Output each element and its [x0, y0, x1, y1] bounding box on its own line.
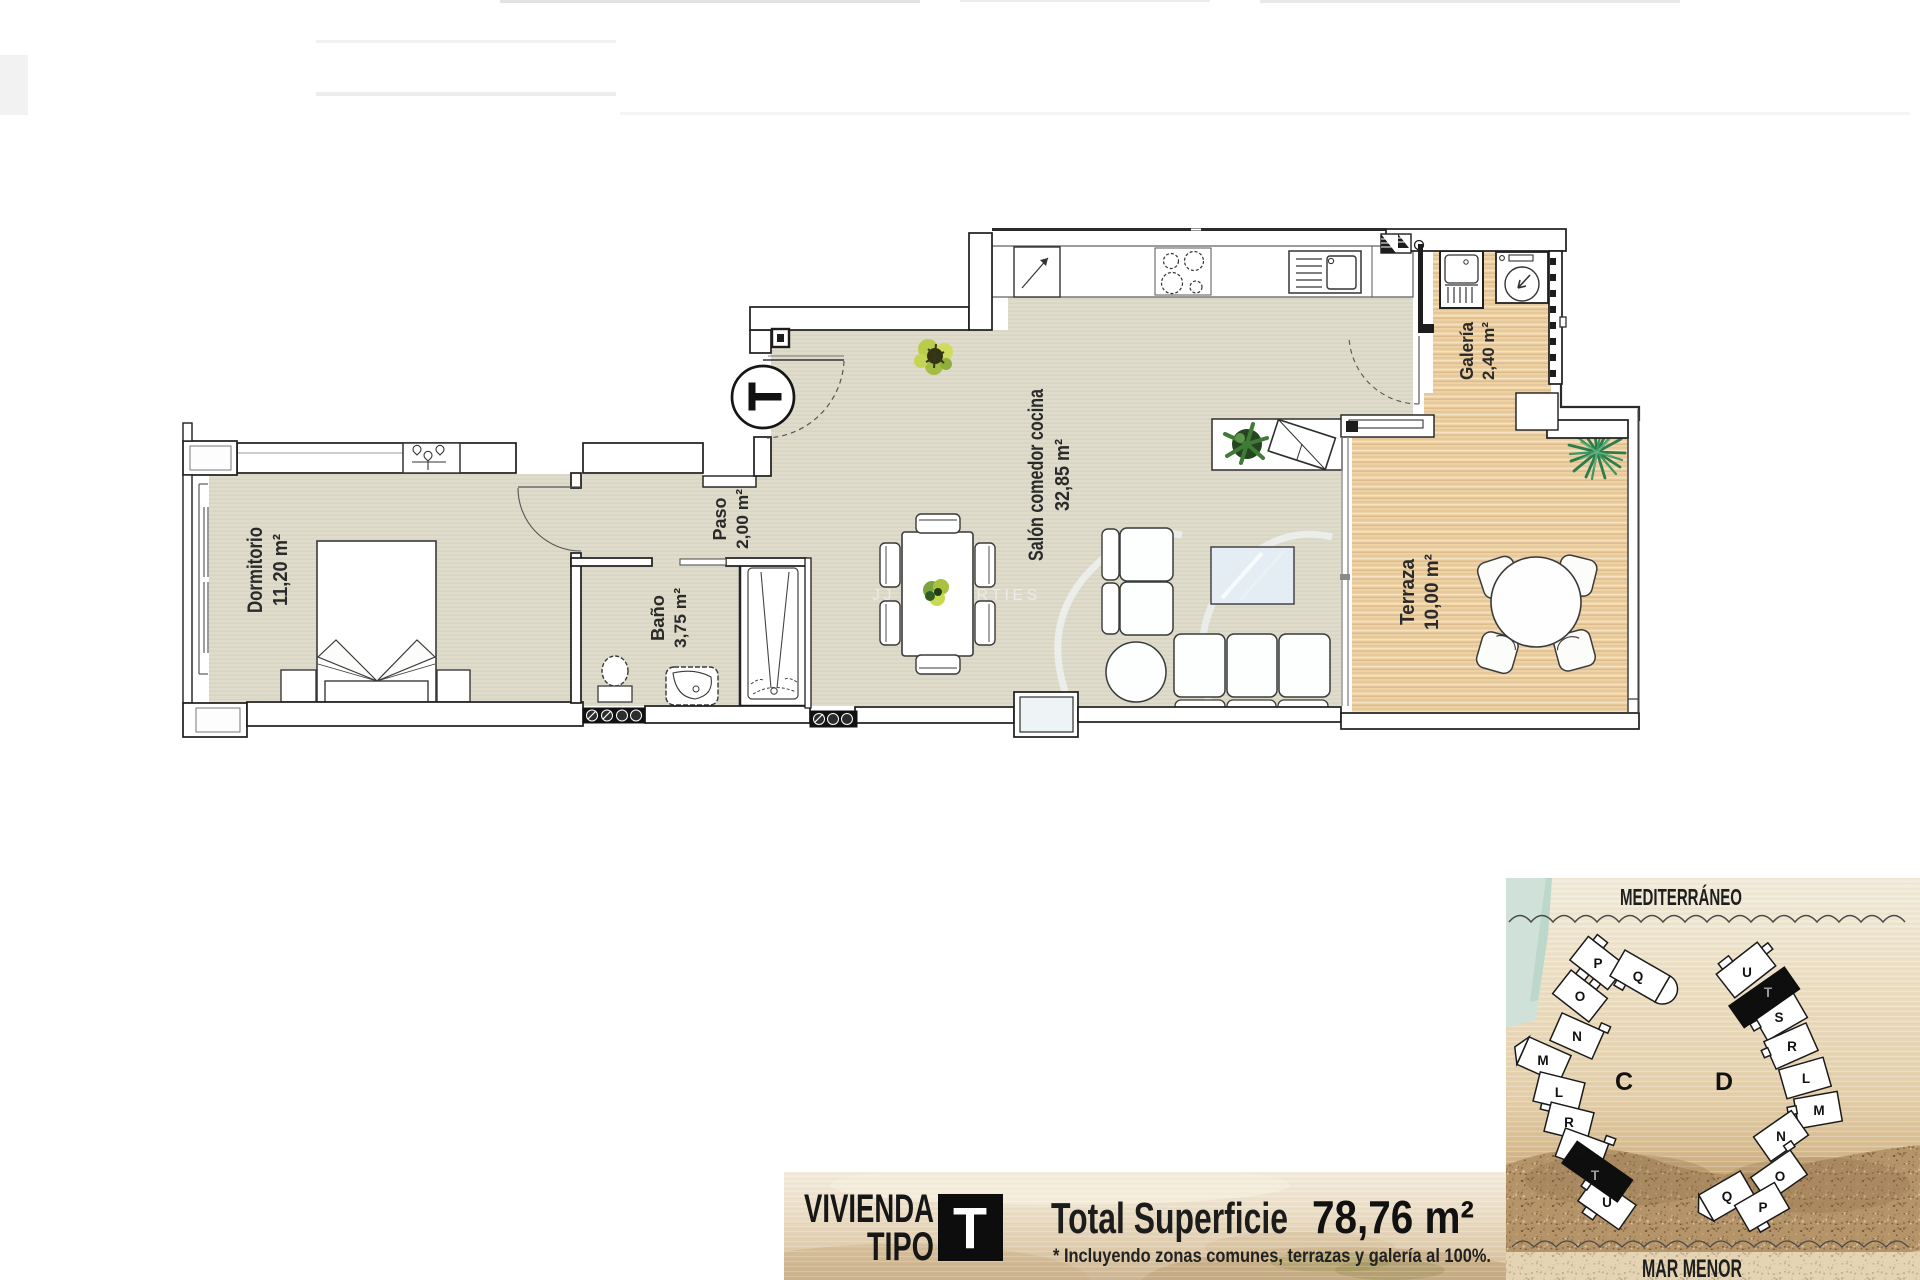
svg-text:L: L: [1802, 1071, 1810, 1086]
svg-text:M: M: [1813, 1103, 1824, 1118]
svg-text:32,85 m²: 32,85 m²: [1052, 439, 1074, 511]
svg-text:T: T: [953, 1197, 987, 1262]
svg-text:78,76 m²: 78,76 m²: [1312, 1191, 1474, 1243]
svg-text:10,00 m²: 10,00 m²: [1422, 554, 1443, 630]
svg-text:MEDITERRÁNEO: MEDITERRÁNEO: [1620, 883, 1742, 910]
svg-text:Q: Q: [1722, 1189, 1733, 1204]
svg-text:T: T: [1591, 1168, 1600, 1183]
svg-text:Baño: Baño: [648, 595, 668, 641]
svg-text:Dormitorio: Dormitorio: [244, 527, 267, 613]
svg-text:S: S: [1577, 1143, 1586, 1158]
svg-text:Paso: Paso: [710, 498, 730, 541]
svg-text:R: R: [1787, 1039, 1797, 1054]
svg-text:TIPO: TIPO: [867, 1225, 934, 1269]
svg-text:MAR MENOR: MAR MENOR: [1642, 1255, 1742, 1280]
svg-text:3,75 m²: 3,75 m²: [671, 588, 690, 648]
svg-text:L: L: [1555, 1085, 1563, 1100]
svg-text:O: O: [1775, 1169, 1786, 1184]
svg-text:P: P: [1593, 956, 1602, 971]
svg-text:C: C: [1615, 1068, 1633, 1096]
svg-text:Q: Q: [1633, 969, 1644, 984]
svg-text:N: N: [1572, 1029, 1582, 1044]
svg-text:11,20 m²: 11,20 m²: [270, 534, 292, 606]
svg-text:2,40 m²: 2,40 m²: [1479, 322, 1498, 380]
svg-text:U: U: [1602, 1195, 1612, 1210]
svg-text:O: O: [1575, 989, 1586, 1004]
svg-text:U: U: [1742, 965, 1752, 980]
svg-text:R: R: [1564, 1115, 1574, 1130]
svg-text:Galería: Galería: [1457, 321, 1477, 380]
svg-text:P: P: [1758, 1200, 1767, 1215]
svg-text:D: D: [1715, 1068, 1733, 1096]
svg-text:Terraza: Terraza: [1397, 558, 1419, 625]
svg-text:2,00 m²: 2,00 m²: [733, 489, 752, 549]
svg-text:Total Superficie: Total Superficie: [1051, 1194, 1288, 1243]
svg-text:Salón comedor cocina: Salón comedor cocina: [1025, 389, 1048, 561]
svg-text:* Incluyendo zonas comunes, te: * Incluyendo zonas comunes, terrazas y g…: [1053, 1246, 1491, 1267]
svg-text:N: N: [1776, 1129, 1786, 1144]
svg-text:M: M: [1537, 1053, 1548, 1068]
svg-text:T: T: [1764, 985, 1773, 1000]
svg-text:S: S: [1774, 1010, 1783, 1025]
